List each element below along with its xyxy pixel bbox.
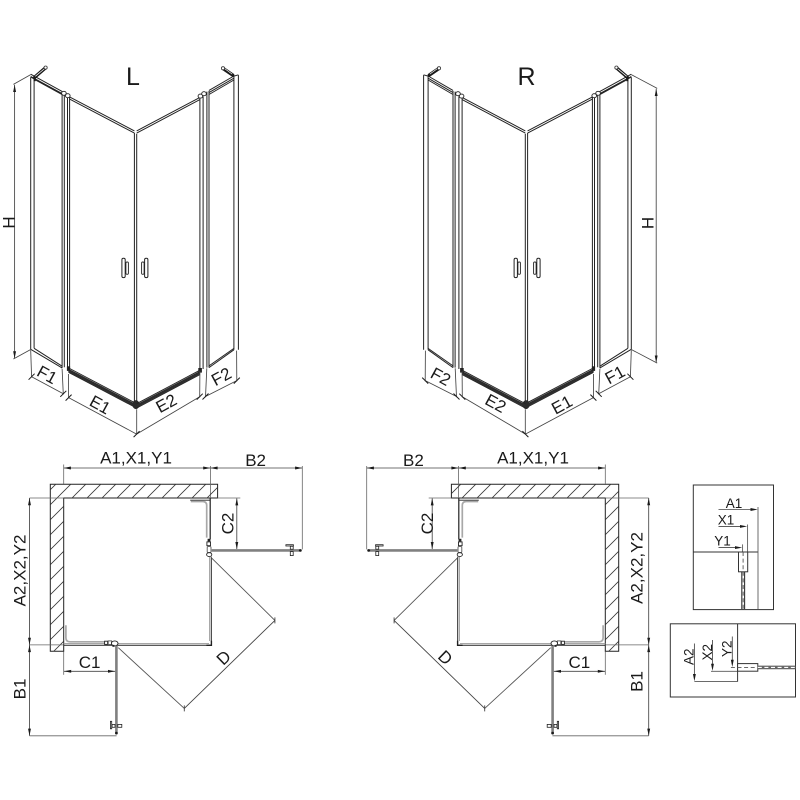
svg-text:R: R	[517, 63, 535, 91]
svg-text:A1,X1,Y1: A1,X1,Y1	[497, 449, 569, 468]
svg-text:X2: X2	[700, 644, 715, 661]
svg-text:B1: B1	[628, 671, 647, 692]
svg-text:X1: X1	[718, 513, 735, 528]
svg-text:B1: B1	[11, 679, 30, 700]
svg-text:C1: C1	[79, 653, 101, 672]
svg-text:H: H	[639, 217, 658, 229]
svg-text:H: H	[0, 216, 19, 228]
svg-text:L: L	[126, 63, 140, 91]
svg-text:A2,X2,Y2: A2,X2,Y2	[628, 532, 647, 604]
svg-text:A1: A1	[726, 496, 743, 511]
svg-text:Y2: Y2	[720, 641, 735, 658]
svg-text:C2: C2	[418, 513, 437, 535]
svg-text:A1,X1,Y1: A1,X1,Y1	[100, 449, 172, 468]
svg-text:A2: A2	[681, 649, 696, 666]
svg-text:B2: B2	[403, 451, 424, 470]
svg-text:C1: C1	[569, 653, 591, 672]
svg-text:B2: B2	[245, 451, 266, 470]
svg-text:Y1: Y1	[714, 534, 731, 549]
svg-text:A2,X2,Y2: A2,X2,Y2	[11, 535, 30, 607]
svg-text:C2: C2	[219, 513, 238, 535]
